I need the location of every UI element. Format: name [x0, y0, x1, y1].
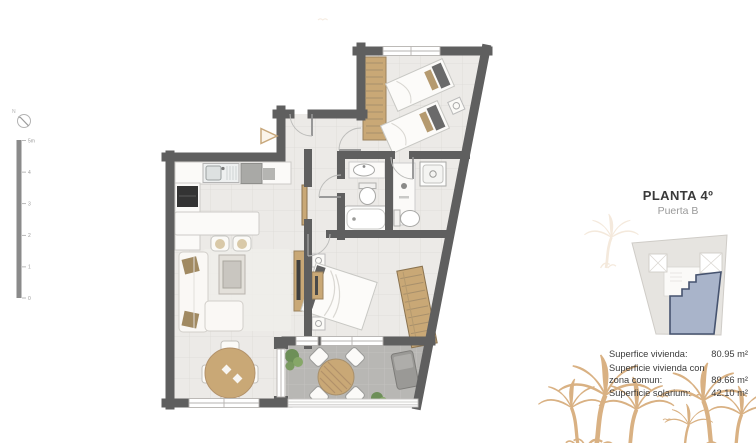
terrace-table: [318, 359, 354, 395]
area-row: Superficie vivienda con zona comun: 89.6…: [609, 362, 748, 386]
area-value: 89.66 m²: [711, 374, 748, 386]
area-label: Superficie solarium:: [609, 387, 710, 399]
svg-text:5m: 5m: [28, 138, 35, 144]
entrance-arrow-icon: [261, 129, 277, 144]
scale-bar: 5m 4 3 2 1 0: [17, 138, 35, 301]
info-panel: PLANTA 4º Puerta B Superfice vivienda: 8…: [600, 188, 756, 217]
area-row: Superficie solarium: 42.10 m²: [609, 387, 748, 399]
terrace-railing: [288, 399, 418, 407]
nightstand: [312, 317, 325, 330]
wall-corner: [274, 396, 288, 407]
key-plan: [632, 235, 727, 335]
kitchen-sink: [203, 164, 239, 183]
shower: [420, 162, 446, 186]
bathtub: [344, 206, 388, 232]
window-bedroom-terrace: [321, 337, 383, 346]
cooktop: [241, 164, 262, 184]
area-value: 42.10 m²: [711, 387, 748, 399]
svg-text:1: 1: [28, 265, 31, 271]
svg-text:N: N: [12, 109, 16, 115]
kitchen-island: [175, 212, 259, 235]
area-label: Superfice vivienda:: [609, 348, 710, 360]
svg-text:2: 2: [28, 233, 31, 239]
svg-text:0: 0: [28, 296, 31, 302]
plan-subtitle: Puerta B: [600, 205, 756, 217]
floorplan-page: N 5m 4 3 2 1 0: [0, 0, 756, 443]
svg-text:4: 4: [28, 170, 31, 176]
toilet: [359, 183, 376, 205]
glass-door-terrace: [296, 337, 318, 346]
area-row: Superfice vivienda: 80.95 m²: [609, 348, 748, 360]
plan-title: PLANTA 4º: [600, 188, 756, 203]
north-compass-icon: N: [12, 109, 31, 128]
window-bedroom2-top: [383, 47, 440, 56]
toilet-2: [394, 210, 420, 227]
area-table: Superfice vivienda: 80.95 m² Superficie …: [609, 348, 748, 401]
wall-corner: [274, 337, 288, 349]
svg-text:3: 3: [28, 202, 31, 208]
small-appliance: [263, 168, 275, 180]
area-label: Superficie vivienda con zona comun:: [609, 362, 710, 386]
area-value: 80.95 m²: [711, 348, 748, 360]
window-living-bottom: [189, 399, 259, 408]
window-terrace-side: [277, 349, 285, 397]
bedroom-dresser: [312, 272, 323, 299]
coffee-table: [219, 255, 245, 294]
